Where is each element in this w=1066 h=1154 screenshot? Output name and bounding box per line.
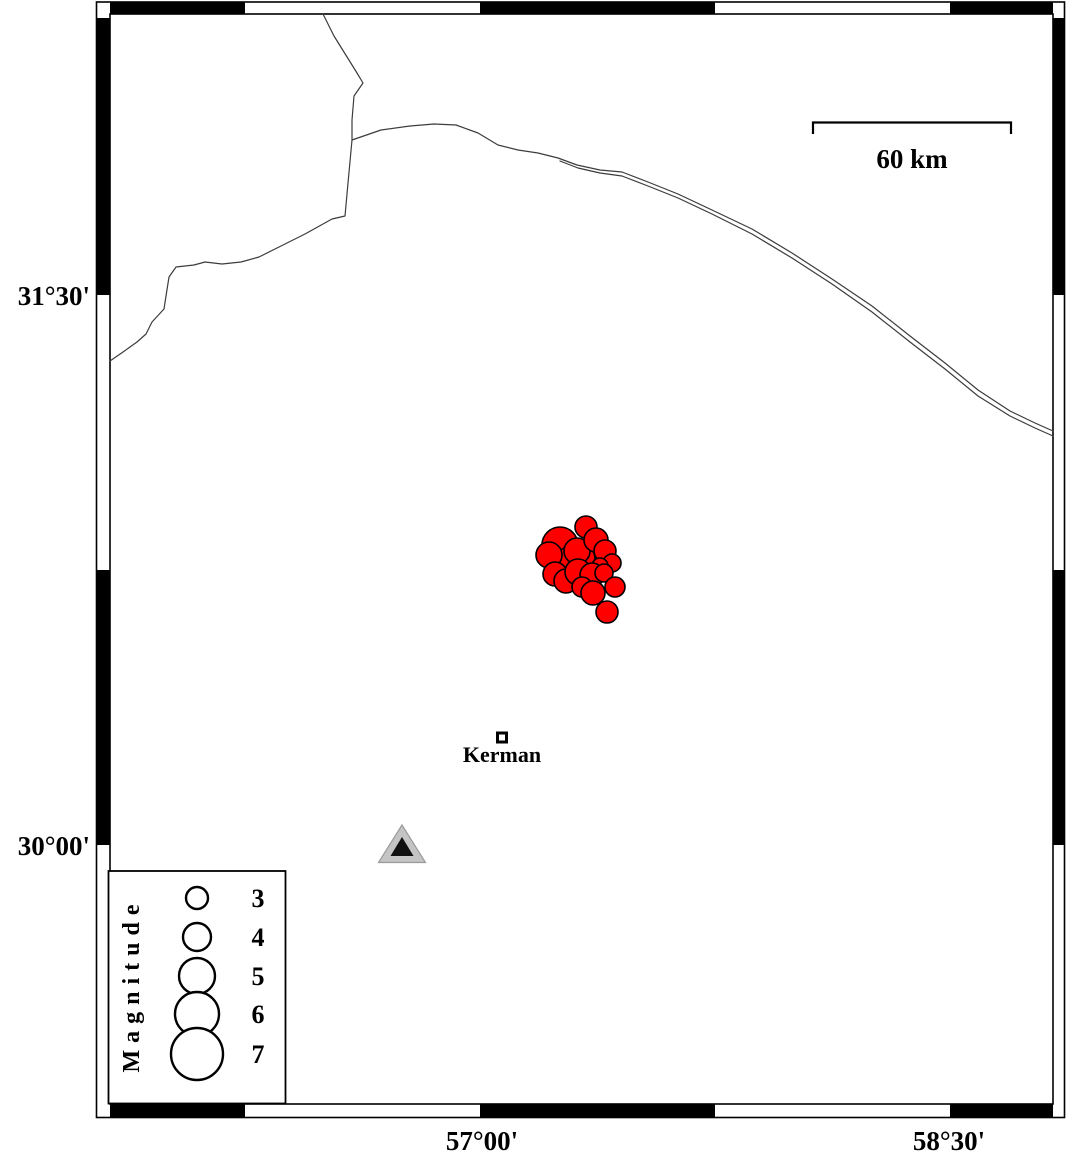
station-triangle bbox=[379, 825, 426, 863]
scalebar-bracket bbox=[813, 123, 1011, 135]
scalebar-label: 60 km bbox=[876, 144, 948, 174]
legend-item-label: 4 bbox=[252, 923, 265, 952]
boundary-line-main-south bbox=[560, 161, 1053, 436]
city-kerman: Kerman bbox=[463, 733, 541, 767]
legend-circle-mag5 bbox=[179, 958, 215, 994]
legend-item-label: 7 bbox=[252, 1040, 265, 1069]
legend-circle-mag4 bbox=[183, 923, 211, 951]
frame-tick-left bbox=[97, 570, 110, 845]
city-marker-square bbox=[498, 733, 507, 742]
lon-label-57-00: 57°00' bbox=[446, 1126, 518, 1154]
frame-tick-top bbox=[110, 3, 245, 15]
map-canvas: 60 km Kerman 31°30' 30°00' 57°00' 58°30'… bbox=[0, 0, 1066, 1154]
legend-circle-mag7 bbox=[171, 1028, 223, 1080]
scalebar: 60 km bbox=[813, 123, 1011, 175]
earthquake-marker bbox=[596, 601, 618, 623]
frame-tick-bottom bbox=[110, 1104, 245, 1117]
frame-tick-left bbox=[97, 18, 110, 295]
legend-item-label: 6 bbox=[252, 1000, 265, 1029]
frame-tick-bottom bbox=[480, 1104, 715, 1117]
frame-tick-right bbox=[1053, 18, 1065, 295]
boundary-line-main bbox=[352, 124, 1053, 431]
lat-label-31-30: 31°30' bbox=[18, 281, 90, 311]
boundary-lines bbox=[110, 14, 1053, 436]
frame-tick-top bbox=[950, 3, 1053, 15]
legend-circle-mag3 bbox=[186, 887, 208, 909]
lon-label-58-30: 58°30' bbox=[913, 1126, 985, 1154]
legend-title: Magnitude bbox=[119, 897, 145, 1072]
earthquake-cluster bbox=[536, 516, 625, 623]
frame-tick-bottom bbox=[950, 1104, 1053, 1117]
frame-tick-right bbox=[1053, 570, 1065, 845]
seismicity-map-figure: 60 km Kerman 31°30' 30°00' 57°00' 58°30'… bbox=[0, 0, 1066, 1154]
lat-label-30-00: 30°00' bbox=[18, 831, 90, 861]
magnitude-legend: Magnitude 34567 bbox=[109, 871, 286, 1104]
legend-item-label: 5 bbox=[252, 962, 265, 991]
earthquake-marker bbox=[581, 581, 605, 605]
city-label: Kerman bbox=[463, 742, 541, 767]
frame-tick-top bbox=[480, 3, 715, 15]
legend-item-label: 3 bbox=[252, 884, 265, 913]
boundary-line-west bbox=[110, 14, 363, 361]
earthquake-marker bbox=[605, 577, 625, 597]
